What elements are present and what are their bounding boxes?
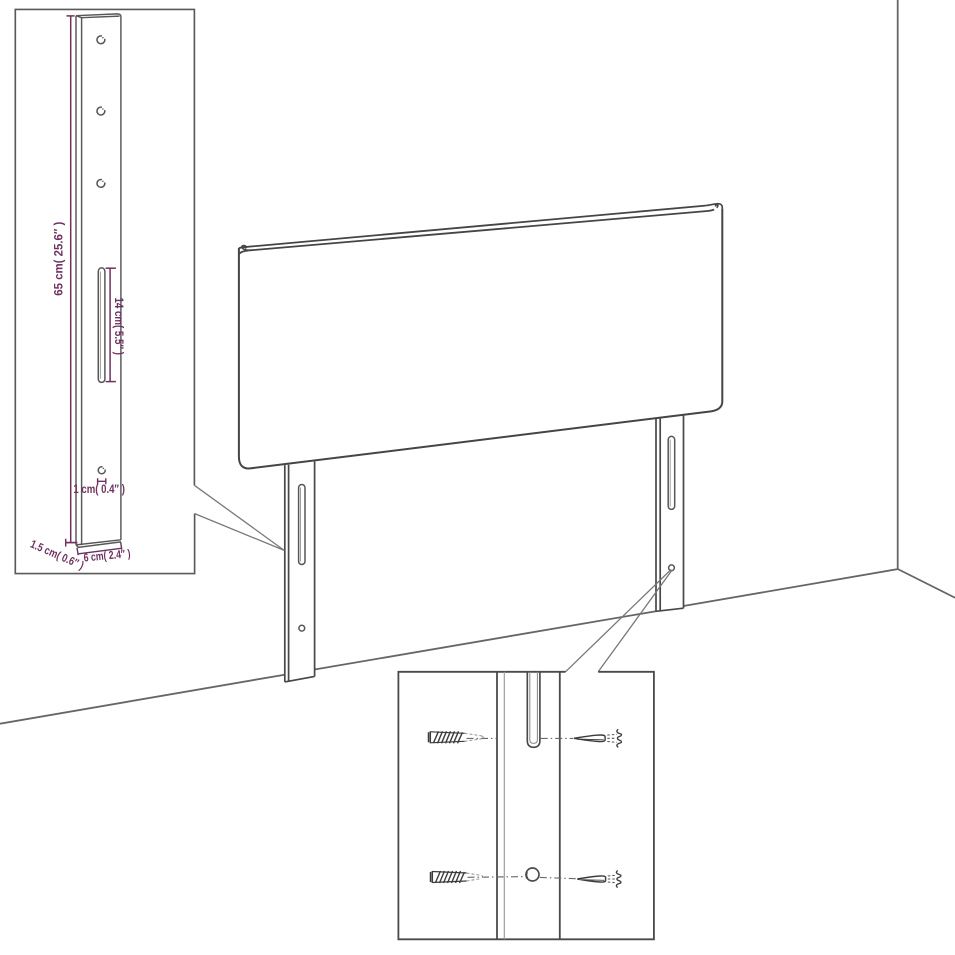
svg-text:6 cm( 2.4″ ): 6 cm( 2.4″ ): [83, 548, 131, 564]
svg-text:1 cm( 0.4″ ): 1 cm( 0.4″ ): [73, 484, 125, 496]
svg-text:1.5 cm( 0.6″ ): 1.5 cm( 0.6″ ): [28, 539, 85, 573]
svg-text:14 cm( 5.5″ ): 14 cm( 5.5″ ): [112, 298, 126, 356]
svg-text:65 cm( 25.6″ ): 65 cm( 25.6″ ): [52, 222, 66, 296]
